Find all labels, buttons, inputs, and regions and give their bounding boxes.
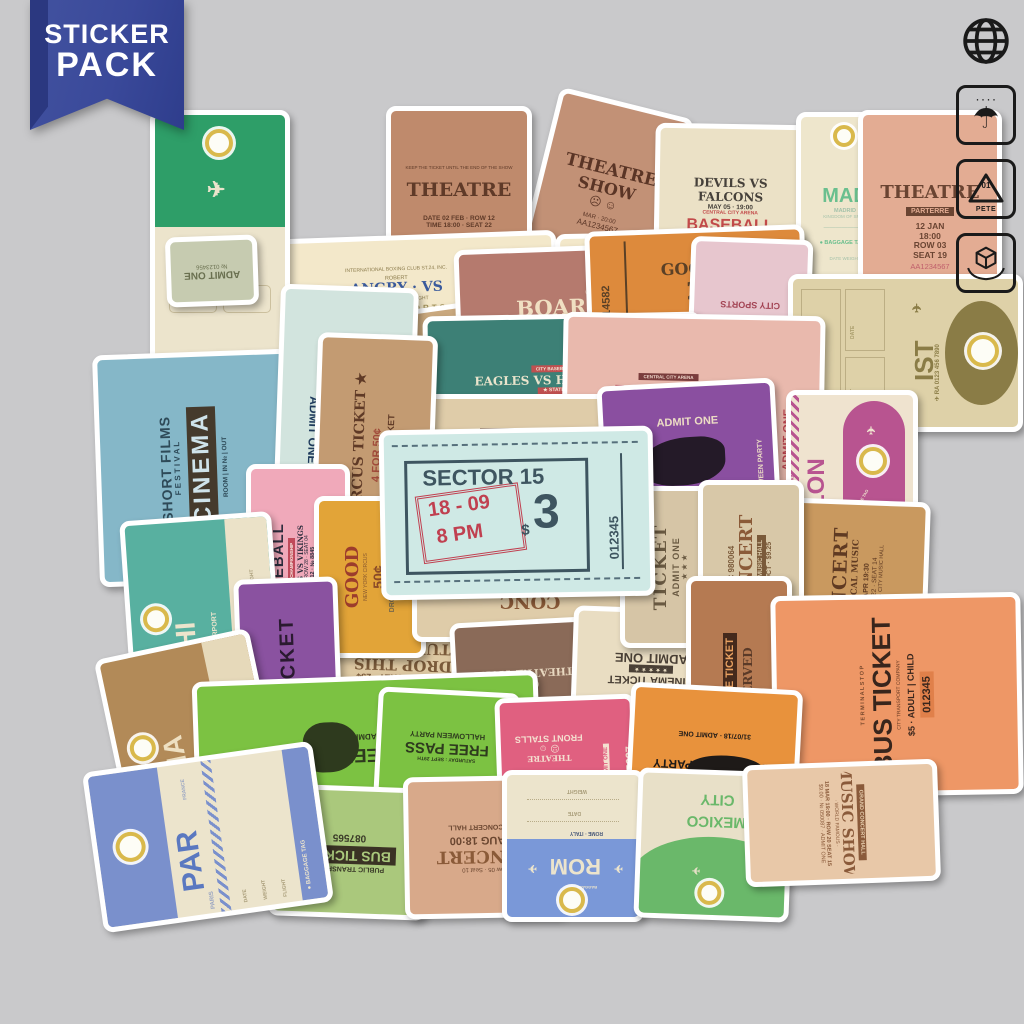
- theatre-parterre-ticket-text: AA1234567: [910, 263, 949, 271]
- sector-15-ticket: SECTOR 1518 - 098 PM$3012345: [379, 426, 656, 601]
- rom-luggage-tag-label: ROME · ITALY: [570, 830, 603, 835]
- admit-one-stamp: ADMIT ONE№ 0123456: [165, 234, 259, 307]
- package-handling-icon: [956, 233, 1016, 293]
- theatre-ticket-copper-text: THEATRE: [407, 180, 512, 201]
- devils-falcons-baseball-ticket-text: FALCONS: [698, 190, 763, 205]
- theatre-ticket-copper-text: TIME 18:00 · SEAT 22: [426, 222, 492, 229]
- short-films-cinema-ticket-text: F E S T I V A L: [173, 442, 184, 496]
- boxing-ticket-left-text: INTERNATIONAL BOXING CLUB ST.24, INC.: [345, 266, 447, 275]
- umbrella-glyph: ☂: [973, 104, 1000, 134]
- sector-15-ticket-label: SECTOR 15: [422, 466, 544, 490]
- rom-luggage-tag-label: ROM: [550, 855, 601, 877]
- sector-15-ticket-label: $: [521, 523, 530, 538]
- bus-ticket-green-text: 087565: [333, 832, 367, 844]
- short-films-cinema-ticket-text: CINEMA: [186, 406, 219, 530]
- rom-luggage-tag-label: WEIGHT: [567, 788, 587, 793]
- rom-luggage-tag-label: ✈: [614, 862, 623, 873]
- bus-ticket-orange-text: CITY TRANSPORT COMPANY: [897, 660, 904, 730]
- pete-label: PETE: [959, 206, 1013, 213]
- good-50c-circus-ticket-text: NEW YORK CIRCUS: [364, 553, 370, 601]
- theatre-front-stalls-ticket-text: FRONT STALLS: [515, 732, 583, 744]
- sticker-pack-banner: STICKER PACK: [30, 0, 184, 130]
- theatre-ticket-copper-text: KEEP THE TICKET UNTIL THE END OF THE SHO…: [405, 165, 512, 170]
- vienna-luggage-tag-eyelet: [205, 129, 233, 157]
- theatre-parterre-ticket-text: PARTERRE: [906, 207, 954, 217]
- admit-one-stamp-text: № 0123456: [196, 262, 228, 270]
- bus-ticket-orange-text: 012345: [919, 671, 934, 718]
- bus-ticket-orange-text: $5 · ADULT | CHILD: [905, 653, 917, 736]
- sticker-pack-product-image: { "canvas": {"width": 1024, "height": 10…: [0, 0, 1024, 1024]
- lower-box-admit-ticket-text: CITY SPORTS: [720, 299, 780, 311]
- bus-ticket-orange-text: BUS TICKET: [867, 617, 899, 773]
- rom-luggage-tag: WEIGHTDATEROME · ITALYROM✈✈BAGGAGE TAG: [502, 770, 644, 922]
- vienna-luggage-tag-label: ✈: [207, 179, 225, 201]
- banner-ribbon-shape: STICKER PACK: [30, 0, 184, 130]
- baseball-continental-cup-ticket-text: CENTRAL CITY ARENA: [639, 373, 699, 381]
- ist-luggage-tag-label: DATE: [851, 326, 856, 339]
- par-luggage-tag: PARPARISFRANCEDATEWEIGHTFLIGHT● BAGGAGE …: [82, 741, 334, 934]
- mexico-city-luggage-tag-label: CITY: [700, 792, 735, 808]
- ist-luggage-tag-label: ✈: [911, 303, 923, 313]
- sector-15-ticket-label: 012345: [607, 516, 621, 560]
- banner-line2: PACK: [30, 48, 184, 84]
- theatre-parterre-ticket-text: SEAT 19: [913, 251, 947, 261]
- lon-luggage-tag-eyelet: [859, 447, 887, 475]
- pete-code: 01: [959, 181, 1013, 190]
- bus-ticket-orange-text: T E R M I N A L S T O P: [859, 666, 866, 726]
- rom-luggage-tag-eyelet: [559, 887, 585, 913]
- globe-icon: [961, 16, 1011, 71]
- mexico-city-luggage-tag-label: ✈: [692, 864, 701, 874]
- mad-luggage-tag-text: DATE WEIGHT: [830, 256, 861, 261]
- ist-luggage-tag-eyelet: [967, 335, 999, 367]
- rom-luggage-tag-shape: [527, 821, 619, 822]
- rom-luggage-tag-label: DATE: [568, 810, 581, 815]
- rom-luggage-tag-label: ✈: [528, 862, 537, 873]
- rom-luggage-tag-shape: [527, 799, 619, 800]
- admit-one-stamp-text: ADMIT ONE: [184, 268, 240, 281]
- short-films-cinema-ticket-text: ROOM | IN № | OUT: [221, 437, 230, 498]
- theatre-front-stalls-ticket-text: THEATRE: [527, 752, 571, 762]
- mad-luggage-tag-eyelet: [833, 125, 855, 147]
- theatre-front-stalls-ticket-text: ☹ ☺: [538, 743, 559, 754]
- music-show-ticket: GRAND CONCERT HALLMUSIC SHOW· WORLD FAMO…: [742, 759, 941, 888]
- theatre-ticket-copper-text: DATE 02 FEB · ROW 12: [423, 215, 495, 222]
- ticket-admit-one-tan-text: ★ ★ ★: [681, 554, 690, 580]
- ist-luggage-tag-shape: [845, 289, 885, 351]
- sticker-collage-stage: THEATRESHOW☹ ☺MAR · 20:00AA1234567ADMIT …: [0, 0, 1024, 1024]
- recycle-pete-icon: 01 PETE: [956, 159, 1016, 219]
- packaging-icon-column: · · · · ☂ 01 PETE: [956, 16, 1016, 293]
- lon-luggage-tag-label: ✈: [867, 426, 878, 435]
- music-show-ticket-text: · WORLD FAMOUS ·: [832, 800, 839, 847]
- halloween-party-orange-ticket-text: 31/07/18 · ADMIT ONE: [678, 729, 751, 741]
- ist-luggage-tag-label: ✈ RA 0123 456 7890: [935, 344, 941, 401]
- cinema-ticket-text: ADMIT ONE: [615, 649, 688, 666]
- banner-line1: STICKER: [30, 20, 184, 48]
- mexico-city-luggage-tag-label: MEXICO: [686, 813, 746, 830]
- sector-15-ticket-label: 3: [533, 488, 561, 536]
- good-50c-circus-ticket-text: GOOD: [343, 546, 363, 608]
- halloween-party-purple-ticket-text: ADMIT ONE: [656, 414, 718, 430]
- umbrella-rain-icon: · · · · ☂: [956, 85, 1016, 145]
- ist-luggage-tag-label: IST: [911, 341, 937, 381]
